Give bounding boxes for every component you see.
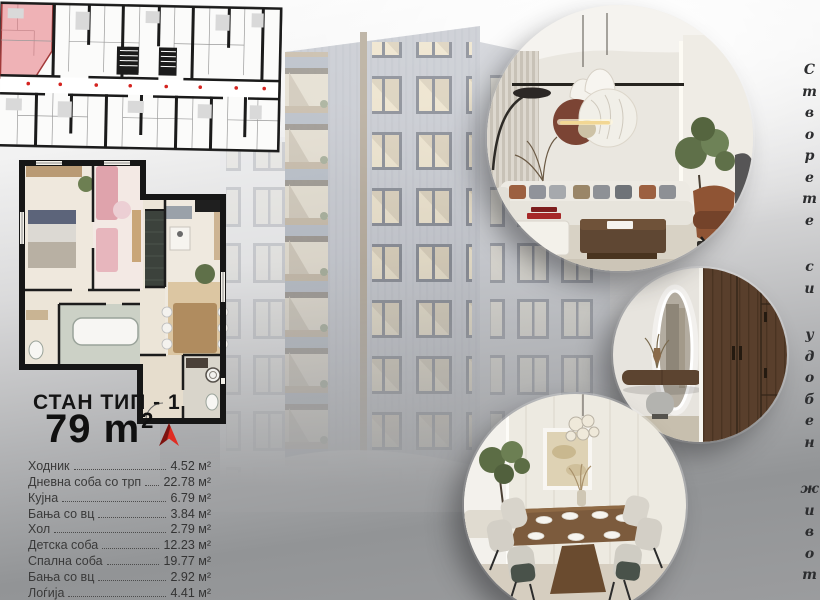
- dotted-leader: [98, 517, 166, 518]
- tagline-letter: у: [805, 325, 813, 347]
- room-area: 4.52 м²: [170, 459, 211, 473]
- apartment-floor-plan: [14, 152, 239, 427]
- dotted-leader: [62, 501, 166, 502]
- tagline-letter: т: [802, 82, 817, 104]
- tagline-letter: в: [805, 103, 814, 125]
- area-superscript: 2: [141, 408, 154, 433]
- tagline-letter: т: [802, 565, 817, 587]
- room-name: Хол: [28, 522, 50, 536]
- room-name: Детска соба: [28, 538, 98, 552]
- tagline-letter: и: [804, 279, 814, 301]
- area-number: 79 m: [45, 407, 140, 451]
- room-area: 2.79 м²: [170, 522, 211, 536]
- tagline-letter: в: [805, 522, 814, 544]
- room-area: 3.84 м²: [170, 507, 211, 521]
- room-area: 2.92 м²: [170, 570, 211, 584]
- tagline-letter: е: [805, 411, 814, 433]
- brochure-page: СТАН ТИП - 1 79 m2 Ходник4.52 м² Дневна …: [0, 0, 820, 600]
- room-row: Ходник4.52 м²: [28, 457, 211, 473]
- dotted-leader: [102, 548, 159, 549]
- tagline-letter: С: [804, 60, 815, 82]
- building-floor-overview-plan: [0, 0, 284, 154]
- dotted-leader: [145, 485, 159, 486]
- tagline-letter: т: [802, 189, 817, 211]
- photo-circle-living-room: [487, 5, 753, 271]
- room-area-list: Ходник4.52 м² Дневна соба со трп22.78 м²…: [28, 457, 211, 600]
- tagline-letter: н: [804, 433, 814, 455]
- room-row: Кујна6.79 м²: [28, 489, 211, 505]
- dotted-leader: [74, 469, 167, 470]
- room-row: Бања со вц3.84 м²: [28, 505, 211, 521]
- tagline-letter: р: [805, 146, 815, 168]
- tagline-letter: с: [805, 257, 814, 279]
- room-name: Спална соба: [28, 554, 103, 568]
- room-area: 22.78 м²: [163, 475, 211, 489]
- vertical-tagline: Створетесиудобенживот: [800, 60, 819, 587]
- room-row: Спална соба19.77 м²: [28, 552, 211, 568]
- photo-circle-dining-room: [464, 394, 686, 600]
- room-area: 6.79 м²: [170, 491, 211, 505]
- tagline-letter: е: [805, 168, 814, 190]
- room-row: Лоѓија4.41 м²: [28, 584, 211, 600]
- tagline-letter: ж: [800, 479, 818, 501]
- room-name: Бања со вц: [28, 507, 94, 521]
- room-area: 12.23 м²: [163, 538, 211, 552]
- room-row: Хол2.79 м²: [28, 521, 211, 537]
- room-area: 19.77 м²: [163, 554, 211, 568]
- tagline-letter: и: [804, 501, 814, 523]
- dotted-leader: [98, 580, 166, 581]
- room-row: Детска соба12.23 м²: [28, 536, 211, 552]
- dotted-leader: [107, 564, 160, 565]
- tagline-letter: о: [805, 125, 814, 147]
- room-name: Дневна соба со трп: [28, 475, 141, 489]
- room-row: Бања со вц2.92 м²: [28, 568, 211, 584]
- tagline-letter: о: [805, 544, 814, 566]
- tagline-letter: д: [805, 347, 815, 369]
- room-name: Кујна: [28, 491, 58, 505]
- room-row: Дневна соба со трп22.78 м²: [28, 473, 211, 489]
- dotted-leader: [54, 532, 166, 533]
- room-name: Ходник: [28, 459, 70, 473]
- tagline-letter: б: [804, 390, 814, 412]
- room-name: Лоѓија: [28, 586, 64, 600]
- room-area: 4.41 м²: [170, 586, 211, 600]
- dotted-leader: [68, 596, 166, 597]
- room-name: Бања со вц: [28, 570, 94, 584]
- unit-area-value: 79 m2: [45, 407, 154, 452]
- tagline-letter: о: [805, 368, 814, 390]
- tagline-letter: е: [805, 211, 814, 233]
